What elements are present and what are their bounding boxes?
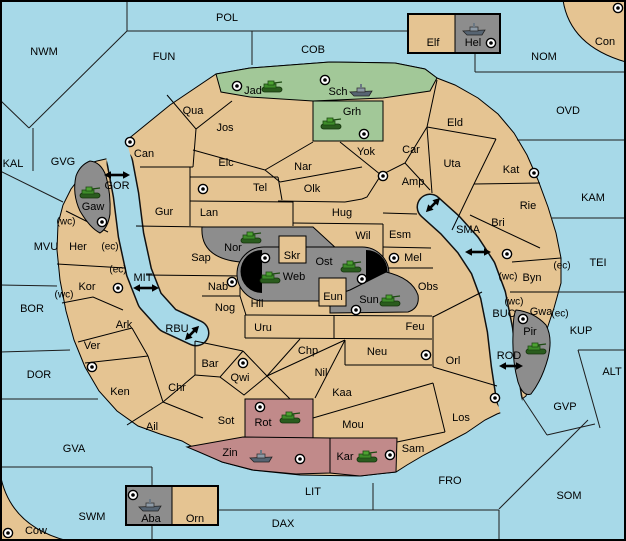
province-label-Hug: Hug	[332, 207, 352, 219]
sc-dot	[381, 174, 385, 178]
coast-label-2: (ec)	[109, 265, 126, 276]
province-label-Car: Car	[402, 144, 420, 156]
coast-label-3: (wc)	[55, 290, 74, 301]
province-label-Rot: Rot	[254, 417, 271, 429]
ship-superstructure	[146, 503, 154, 507]
supply-center-Hel	[486, 38, 495, 47]
province-label-Ail: Ail	[146, 421, 158, 433]
ship-superstructure	[470, 27, 478, 31]
province-label-Zin: Zin	[222, 447, 237, 459]
province-label-Skr: Skr	[284, 250, 301, 262]
coast-label-4: (wc)	[499, 272, 518, 283]
sc-dot	[362, 132, 366, 136]
supply-center-Grh	[359, 129, 368, 138]
province-label-Nab: Nab	[208, 281, 228, 293]
sea-label-KAL: KAL	[3, 158, 24, 170]
supply-center-Ost	[357, 274, 366, 283]
coast-label-0: (wc)	[57, 217, 76, 228]
tank-turret	[532, 343, 538, 347]
supply-center-Cow	[3, 528, 12, 537]
supply-center-Pir	[518, 314, 527, 323]
province-label-Elc: Elc	[218, 157, 234, 169]
sc-dot	[392, 256, 396, 260]
province-label-Gaw: Gaw	[82, 201, 105, 213]
tank-turret	[286, 412, 292, 416]
coast-label-5: (ec)	[553, 261, 570, 272]
province-label-Chp: Chp	[298, 345, 318, 357]
tank-turret	[327, 118, 333, 122]
ship-mast	[360, 84, 362, 88]
supply-center-Con	[613, 3, 622, 12]
province-label-Sam: Sam	[402, 443, 425, 455]
province-label-Obs: Obs	[418, 281, 439, 293]
sc-dot	[116, 286, 120, 290]
province-label-Neu: Neu	[367, 346, 387, 358]
supply-center-Rot	[255, 402, 264, 411]
supply-center-Aba	[128, 490, 137, 499]
sea-label-SOM: SOM	[556, 490, 581, 502]
tank-turret	[347, 261, 353, 265]
province-label-Nog: Nog	[215, 302, 235, 314]
supply-center-Jad	[232, 81, 241, 90]
sea-label-KAM: KAM	[581, 192, 605, 204]
province-label-Grh: Grh	[343, 106, 361, 118]
province-label-Aba: Aba	[141, 513, 161, 525]
sea-label-OVD: OVD	[556, 105, 580, 117]
sc-dot	[131, 493, 135, 497]
sc-dot	[128, 140, 132, 144]
supply-center-Los	[490, 393, 499, 402]
coast-label-1: (ec)	[101, 242, 118, 253]
province-label-Her: Her	[69, 241, 87, 253]
sc-dot	[521, 317, 525, 321]
supply-center-Bri	[502, 249, 511, 258]
province-label-Eun: Eun	[323, 291, 343, 303]
sea-label-DOR: DOR	[27, 369, 52, 381]
province-label-Eld: Eld	[447, 117, 463, 129]
province-label-Jos: Jos	[216, 122, 234, 134]
ship-superstructure	[257, 454, 265, 458]
sc-dot	[201, 187, 205, 191]
supply-center-Gaw	[97, 217, 106, 226]
sea-label-MVU: MVU	[34, 241, 59, 253]
province-label-Can: Can	[134, 148, 154, 160]
supply-center-Neu	[421, 350, 430, 359]
ship-mast	[473, 23, 475, 27]
province-label-Nil: Nil	[315, 367, 328, 379]
sc-dot	[298, 457, 302, 461]
sea-label-FRO: FRO	[438, 475, 462, 487]
province-label-Feu: Feu	[406, 321, 425, 333]
sc-dot	[258, 405, 262, 409]
province-label-Sun: Sun	[359, 294, 379, 306]
sea-label-BOR: BOR	[20, 303, 44, 315]
sc-dot	[263, 256, 267, 260]
sc-dot	[90, 365, 94, 369]
sea-label-SMA: SMA	[456, 224, 481, 236]
sea-label-NWM: NWM	[30, 46, 58, 58]
sea-label-COB: COB	[301, 44, 325, 56]
sea-label-GVA: GVA	[63, 443, 86, 455]
province-label-Bri: Bri	[491, 217, 504, 229]
supply-center-Amp	[378, 171, 387, 180]
supply-center-Nab	[227, 277, 236, 286]
province-label-Web: Web	[283, 271, 305, 283]
supply-center-Tel	[198, 184, 207, 193]
province-label-Sch: Sch	[329, 86, 348, 98]
province-label-Wil: Wil	[355, 230, 370, 242]
sea-label-MIT: MIT	[134, 272, 153, 284]
sc-dot	[616, 6, 620, 10]
sea-label-DAX: DAX	[272, 518, 295, 530]
province-label-Hel: Hel	[465, 37, 482, 49]
province-label-Gur: Gur	[155, 206, 174, 218]
province-label-Lan: Lan	[200, 207, 218, 219]
supply-center-Qwi	[238, 358, 247, 367]
sc-dot	[493, 396, 497, 400]
province-label-Esm: Esm	[389, 229, 411, 241]
province-label-Cow: Cow	[25, 525, 47, 537]
supply-center-Sun	[351, 305, 360, 314]
province-label-Uta: Uta	[443, 158, 461, 170]
supply-center-Zin	[295, 454, 304, 463]
province-label-Byn: Byn	[523, 272, 542, 284]
province-label-Jad: Jad	[244, 85, 262, 97]
diplomacy-map[interactable]: NWMPOLCOBFUNNOMOVDKALGVGKAMMVUTEIBORKUPD…	[0, 0, 626, 541]
province-label-Tel: Tel	[253, 182, 267, 194]
province-label-Yok: Yok	[357, 146, 375, 158]
supply-center-Kor	[113, 283, 122, 292]
province-label-Mou: Mou	[342, 419, 363, 431]
sea-label-GVG: GVG	[51, 156, 75, 168]
game-map-stage: NWMPOLCOBFUNNOMOVDKALGVGKAMMVUTEIBORKUPD…	[0, 0, 626, 541]
province-label-Nar: Nar	[294, 161, 312, 173]
province-label-Sap: Sap	[191, 252, 211, 264]
supply-center-Ken	[87, 362, 96, 371]
province-label-Ost: Ost	[315, 256, 332, 268]
province-label-Ken: Ken	[110, 386, 130, 398]
province-label-Qwi: Qwi	[231, 372, 250, 384]
province-label-Ark: Ark	[116, 319, 133, 331]
sc-dot	[424, 353, 428, 357]
supply-center-Sch	[320, 75, 329, 84]
province-label-Qua: Qua	[183, 105, 205, 117]
province-label-Kaa: Kaa	[332, 387, 352, 399]
sc-dot	[235, 84, 239, 88]
tank-turret	[86, 187, 92, 191]
tank-turret	[266, 272, 272, 276]
sea-label-LIT: LIT	[305, 486, 321, 498]
province-label-Pir: Pir	[523, 326, 537, 338]
province-label-Ver: Ver	[84, 340, 101, 352]
province-label-Amp: Amp	[402, 176, 425, 188]
sc-dot	[6, 531, 10, 535]
province-label-Con: Con	[595, 36, 615, 48]
sc-dot	[323, 78, 327, 82]
sc-dot	[241, 361, 245, 365]
province-label-Bar: Bar	[201, 358, 218, 370]
province-label-Los: Los	[452, 412, 470, 424]
sc-dot	[360, 277, 364, 281]
sea-label-GVP: GVP	[553, 401, 576, 413]
province-label-Kar: Kar	[336, 451, 353, 463]
sea-label-POL: POL	[216, 12, 238, 24]
province-label-Orl: Orl	[446, 355, 461, 367]
sea-label-NOM: NOM	[531, 51, 557, 63]
sc-dot	[100, 220, 104, 224]
province-label-Elf: Elf	[427, 37, 441, 49]
province-label-Olk: Olk	[304, 183, 321, 195]
province-label-Rie: Rie	[520, 200, 537, 212]
province-label-Sot: Sot	[218, 415, 235, 427]
sea-label-TEI: TEI	[589, 257, 606, 269]
sc-dot	[388, 453, 392, 457]
tank-turret	[363, 451, 369, 455]
sea-label-RBU: RBU	[165, 323, 188, 335]
coast-label-7: (ec)	[551, 309, 568, 320]
province-label-Nor: Nor	[224, 242, 242, 254]
sc-dot	[505, 252, 509, 256]
province-label-Hil: Hil	[251, 298, 264, 310]
province-label-Gwa: Gwa	[530, 306, 554, 318]
tank-turret	[268, 81, 274, 85]
ship-mast	[260, 450, 262, 454]
sc-dot	[230, 280, 234, 284]
sea-label-KUP: KUP	[570, 325, 593, 337]
supply-center-Web	[260, 253, 269, 262]
province-label-Kat: Kat	[503, 164, 520, 176]
sc-dot	[354, 308, 358, 312]
province-label-Chr: Chr	[168, 382, 186, 394]
sc-dot	[489, 41, 493, 45]
province-label-Orn: Orn	[186, 513, 204, 525]
supply-center-Kat	[529, 168, 538, 177]
sea-label-SWM: SWM	[79, 511, 106, 523]
ship-mast	[149, 499, 151, 503]
sc-dot	[532, 171, 536, 175]
province-label-Kor: Kor	[78, 281, 95, 293]
province-label-Mel: Mel	[404, 252, 422, 264]
tank-turret	[386, 295, 392, 299]
supply-center-Mel	[389, 253, 398, 262]
province-label-Uru: Uru	[254, 322, 272, 334]
tank-turret	[247, 232, 253, 236]
supply-center-Can	[125, 137, 134, 146]
coast-label-6: (wc)	[505, 297, 524, 308]
sea-label-FUN: FUN	[153, 51, 176, 63]
ship-superstructure	[357, 88, 365, 92]
sea-label-BUC: BUC	[492, 308, 515, 320]
sea-label-GOR: GOR	[104, 180, 129, 192]
sea-label-ROD: ROD	[497, 350, 522, 362]
sea-label-ALT: ALT	[602, 366, 622, 378]
supply-center-Kar	[385, 450, 394, 459]
